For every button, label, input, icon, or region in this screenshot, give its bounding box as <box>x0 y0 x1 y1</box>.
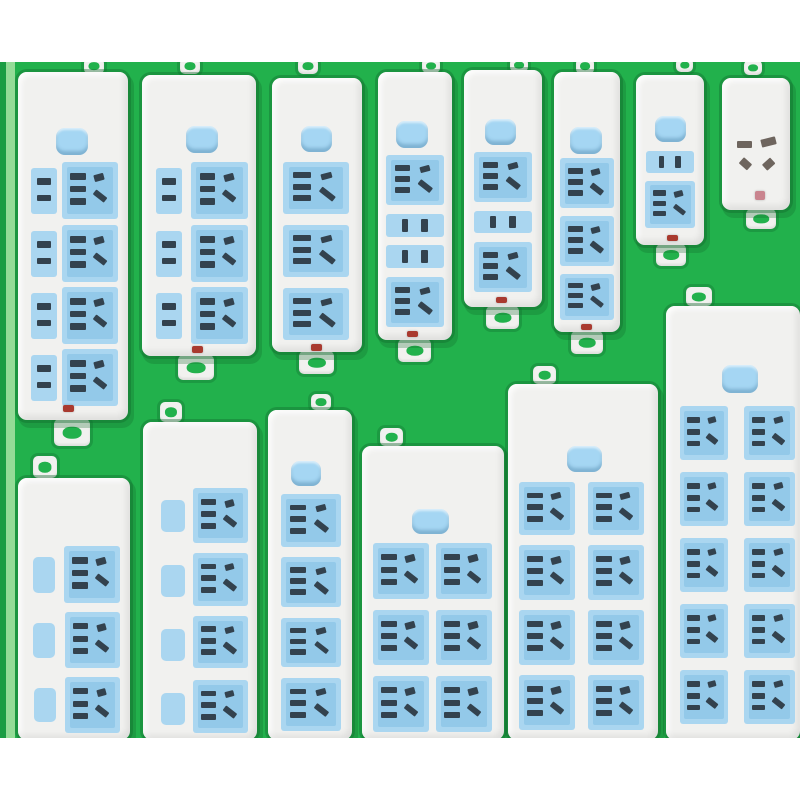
socket-hole <box>444 633 459 639</box>
power-strip <box>508 384 658 740</box>
socket-module <box>193 488 248 543</box>
socket-hole <box>568 179 583 185</box>
socket-hole <box>596 516 611 522</box>
socket-hole <box>596 645 611 651</box>
socket-hole <box>162 178 176 184</box>
socket-hole <box>395 165 411 171</box>
cord-handle-hole <box>307 357 325 368</box>
socket-hole <box>70 373 85 379</box>
hang-tab-hole <box>303 62 314 70</box>
hang-tab <box>33 456 57 478</box>
socket-module <box>34 688 56 722</box>
socket-hole <box>687 417 700 423</box>
socket-hole <box>395 298 411 304</box>
socket-hole <box>162 303 176 309</box>
socket-module <box>193 553 248 606</box>
socket-module <box>193 680 248 733</box>
socket-module <box>281 494 341 547</box>
cord-handle <box>398 339 431 362</box>
socket-module <box>744 406 795 460</box>
socket-hole <box>72 570 87 576</box>
left-edge-highlight-stripe <box>6 62 15 738</box>
hang-tab <box>380 428 403 446</box>
socket-hole <box>402 219 408 231</box>
socket-hole <box>483 263 499 269</box>
socket-module <box>519 545 575 600</box>
socket-hole <box>201 649 216 655</box>
socket-hole <box>201 575 216 581</box>
hang-tab-hole <box>692 292 706 301</box>
power-button <box>396 121 428 148</box>
socket-hole <box>73 688 88 694</box>
socket-hole <box>201 499 216 505</box>
socket-module <box>744 670 795 724</box>
socket-module <box>560 216 614 266</box>
socket-module <box>62 162 118 219</box>
hang-tab-hole <box>580 62 590 70</box>
power-button <box>301 126 332 152</box>
socket-hole <box>37 195 51 201</box>
socket-hole <box>293 247 311 253</box>
socket-hole <box>483 274 499 280</box>
socket-hole <box>568 283 583 288</box>
socket-hole <box>381 633 396 639</box>
socket-module <box>281 678 341 731</box>
socket-hole <box>381 554 396 560</box>
socket-hole <box>201 587 216 593</box>
socket-hole <box>483 173 499 179</box>
socket-hole <box>290 649 306 654</box>
socket-module <box>64 546 120 603</box>
socket-hole <box>752 573 766 579</box>
socket-hole <box>70 323 85 329</box>
socket-hole <box>687 507 700 513</box>
socket-hole <box>421 250 427 262</box>
socket-hole <box>395 309 411 315</box>
socket-hole <box>687 483 700 489</box>
socket-module <box>283 162 349 214</box>
socket-module <box>588 675 644 730</box>
socket-module <box>31 168 57 214</box>
socket-hole <box>72 582 87 588</box>
hang-tab <box>311 394 331 410</box>
socket-hole <box>527 556 542 562</box>
socket-module <box>193 616 248 668</box>
socket-module <box>191 287 248 344</box>
socket-module <box>373 543 429 599</box>
socket-hole <box>527 580 542 586</box>
socket-module <box>744 604 795 658</box>
socket-hole <box>200 236 215 242</box>
power-button <box>186 126 218 153</box>
socket-hole <box>509 216 515 228</box>
power-strip <box>666 306 800 740</box>
socket-hole <box>395 187 411 193</box>
cord-handle <box>746 209 776 229</box>
socket-hole <box>527 710 542 716</box>
socket-hole <box>752 705 766 711</box>
socket-hole <box>72 557 87 563</box>
socket-hole <box>596 633 611 639</box>
socket-module <box>283 225 349 277</box>
cord-handle-hole <box>63 426 82 438</box>
socket-module <box>191 225 248 282</box>
socket-module <box>161 565 185 597</box>
cord-handle <box>54 419 90 446</box>
socket-module <box>680 538 728 592</box>
socket-hole <box>739 157 753 170</box>
socket-hole <box>752 639 766 645</box>
socket-hole <box>596 556 611 562</box>
indicator-light <box>407 331 418 337</box>
hang-tab-hole <box>514 62 524 69</box>
socket-module <box>62 225 118 282</box>
socket-hole <box>527 621 542 627</box>
indicator-light <box>496 297 507 303</box>
socket-hole <box>596 698 611 704</box>
socket-hole <box>37 365 51 371</box>
socket-hole <box>402 250 408 262</box>
socket-hole <box>596 580 611 586</box>
socket-hole <box>762 157 776 170</box>
power-strip <box>18 478 130 740</box>
socket-hole <box>201 702 216 708</box>
socket-hole <box>290 528 306 534</box>
socket-hole <box>70 298 85 304</box>
socket-hole <box>201 714 216 720</box>
socket-hole <box>687 639 700 645</box>
socket-hole <box>290 712 306 718</box>
product-photo-collage <box>0 0 800 800</box>
socket-hole <box>70 360 85 366</box>
socket-hole <box>568 168 583 174</box>
socket-face <box>732 124 784 188</box>
socket-module <box>474 242 532 292</box>
socket-hole <box>687 705 700 711</box>
socket-hole <box>290 639 306 644</box>
hang-tab-hole <box>538 371 551 380</box>
socket-module <box>436 610 492 665</box>
socket-hole <box>381 645 396 651</box>
socket-hole <box>70 186 85 192</box>
socket-hole <box>687 693 700 699</box>
hang-tab-hole <box>89 62 100 70</box>
socket-hole <box>201 511 216 517</box>
socket-module <box>645 181 695 228</box>
socket-hole <box>568 190 583 196</box>
hang-tab-hole <box>165 407 177 417</box>
socket-hole <box>444 645 459 651</box>
power-button <box>567 446 602 472</box>
power-button <box>485 119 516 145</box>
cord-handle <box>178 355 214 380</box>
socket-hole <box>290 516 306 522</box>
socket-hole <box>162 195 176 201</box>
socket-hole <box>568 237 583 243</box>
socket-hole <box>70 385 85 391</box>
socket-hole <box>73 636 88 642</box>
socket-hole <box>201 523 216 529</box>
socket-hole <box>752 429 766 435</box>
socket-hole <box>752 561 766 567</box>
socket-hole <box>596 621 611 627</box>
socket-hole <box>568 248 583 254</box>
indicator-light <box>311 344 322 351</box>
socket-module <box>156 168 182 214</box>
socket-hole <box>687 495 700 501</box>
socket-hole <box>290 505 306 511</box>
socket-hole <box>200 311 215 317</box>
socket-module <box>560 274 614 320</box>
socket-hole <box>596 686 611 692</box>
socket-module <box>646 151 694 173</box>
socket-hole <box>527 645 542 651</box>
socket-hole <box>752 681 766 687</box>
hang-tab-hole <box>316 398 327 406</box>
socket-hole <box>596 568 611 574</box>
socket-hole <box>527 698 542 704</box>
socket-hole <box>483 184 499 190</box>
socket-hole <box>381 712 396 718</box>
socket-hole <box>760 136 776 147</box>
socket-hole <box>752 693 766 699</box>
socket-hole <box>70 173 85 179</box>
socket-hole <box>293 184 311 190</box>
power-strip <box>554 72 620 332</box>
socket-hole <box>752 507 766 513</box>
socket-module <box>519 610 575 665</box>
hang-tab-hole <box>426 62 436 69</box>
bottom-white-band <box>0 738 800 800</box>
socket-hole <box>201 691 216 697</box>
socket-hole <box>37 178 51 184</box>
socket-module <box>744 538 795 592</box>
socket-hole <box>444 567 459 573</box>
socket-hole <box>293 321 311 327</box>
socket-hole <box>293 310 311 316</box>
socket-hole <box>70 198 85 204</box>
socket-hole <box>290 589 306 595</box>
socket-module <box>62 287 118 344</box>
socket-hole <box>200 198 215 204</box>
socket-hole <box>73 623 88 629</box>
socket-hole <box>293 195 311 201</box>
cord-handle <box>299 351 334 374</box>
socket-hole <box>444 687 459 693</box>
socket-hole <box>290 689 306 695</box>
hang-tab-hole <box>38 462 51 473</box>
socket-hole <box>201 638 216 644</box>
top-white-band <box>0 0 800 62</box>
socket-hole <box>37 320 51 326</box>
socket-hole <box>37 382 51 388</box>
socket-module <box>386 214 444 237</box>
socket-hole <box>527 516 542 522</box>
socket-module <box>161 500 185 532</box>
cord-handle <box>571 331 603 354</box>
socket-hole <box>290 567 306 573</box>
socket-module <box>519 675 575 730</box>
socket-hole <box>381 579 396 585</box>
cord-handle-hole <box>753 214 769 223</box>
socket-hole <box>527 633 542 639</box>
socket-module <box>386 245 444 268</box>
socket-hole <box>687 549 700 555</box>
socket-module <box>161 629 185 661</box>
power-button <box>56 128 88 155</box>
socket-hole <box>421 219 427 231</box>
socket-hole <box>653 190 667 195</box>
cord-handle-hole <box>494 312 511 323</box>
socket-module <box>436 543 492 599</box>
socket-hole <box>444 554 459 560</box>
socket-hole <box>37 303 51 309</box>
socket-hole <box>568 303 583 308</box>
cord-handle <box>656 244 686 266</box>
socket-hole <box>73 648 88 654</box>
socket-module <box>31 355 57 401</box>
socket-hole <box>444 700 459 706</box>
socket-hole <box>483 162 499 168</box>
socket-module <box>386 277 444 327</box>
socket-hole <box>752 549 766 555</box>
socket-hole <box>70 249 85 255</box>
socket-hole <box>70 236 85 242</box>
hang-tab <box>744 60 762 75</box>
socket-module <box>281 618 341 667</box>
power-strip <box>268 410 352 740</box>
socket-hole <box>659 156 664 168</box>
cord-handle-hole <box>579 337 596 348</box>
socket-hole <box>527 686 542 692</box>
socket-hole <box>752 441 766 447</box>
socket-module <box>744 472 795 526</box>
socket-hole <box>290 628 306 633</box>
socket-hole <box>653 211 667 216</box>
socket-module <box>62 349 118 406</box>
socket-hole <box>687 573 700 579</box>
socket-hole <box>675 156 680 168</box>
socket-hole <box>687 429 700 435</box>
socket-hole <box>290 578 306 584</box>
socket-module <box>588 610 644 665</box>
power-strip <box>378 72 452 340</box>
socket-module <box>386 155 444 205</box>
hang-tab-hole <box>748 64 758 71</box>
socket-hole <box>381 621 396 627</box>
socket-hole <box>596 504 611 510</box>
socket-hole <box>37 258 51 264</box>
socket-hole <box>444 712 459 718</box>
socket-module <box>33 623 55 658</box>
socket-module <box>161 693 185 725</box>
socket-hole <box>200 261 215 267</box>
socket-hole <box>653 201 667 206</box>
socket-hole <box>73 701 88 707</box>
socket-hole <box>290 700 306 706</box>
power-strip <box>722 78 790 210</box>
socket-hole <box>752 627 766 633</box>
socket-hole <box>527 504 542 510</box>
hang-tab <box>686 287 712 306</box>
socket-hole <box>162 320 176 326</box>
socket-hole <box>381 687 396 693</box>
socket-module <box>65 677 120 733</box>
socket-hole <box>527 568 542 574</box>
power-strip <box>18 72 128 420</box>
socket-hole <box>37 241 51 247</box>
power-button <box>291 461 321 486</box>
hang-tab-hole <box>185 62 196 70</box>
socket-hole <box>444 621 459 627</box>
socket-hole <box>381 700 396 706</box>
socket-hole <box>70 261 85 267</box>
socket-hole <box>200 323 215 329</box>
socket-module <box>588 482 644 535</box>
socket-hole <box>293 172 311 178</box>
socket-hole <box>490 216 496 228</box>
socket-hole <box>752 615 766 621</box>
hang-tab-hole <box>680 62 689 69</box>
cord-handle <box>486 306 519 329</box>
socket-hole <box>73 713 88 719</box>
socket-hole <box>568 226 583 232</box>
socket-hole <box>293 258 311 264</box>
socket-module <box>680 670 728 724</box>
cord-handle-hole <box>406 345 423 356</box>
power-strip <box>143 422 257 740</box>
indicator-light <box>581 324 592 330</box>
socket-hole <box>752 495 766 501</box>
socket-module <box>31 293 57 339</box>
socket-hole <box>483 252 499 258</box>
indicator-light <box>667 235 678 241</box>
socket-hole <box>737 141 752 149</box>
socket-hole <box>596 710 611 716</box>
socket-hole <box>527 493 542 499</box>
hang-tab-hole <box>385 433 398 442</box>
socket-hole <box>687 561 700 567</box>
socket-hole <box>381 567 396 573</box>
power-strip <box>636 75 704 245</box>
power-button <box>655 116 686 142</box>
socket-hole <box>200 249 215 255</box>
socket-hole <box>395 287 411 293</box>
power-strip <box>362 446 504 740</box>
indicator-light <box>755 191 765 200</box>
socket-hole <box>200 173 215 179</box>
cord-handle-hole <box>187 362 206 374</box>
socket-module <box>560 158 614 208</box>
socket-module <box>156 293 182 339</box>
socket-module <box>474 211 532 233</box>
power-strip <box>142 75 256 356</box>
socket-hole <box>596 493 611 499</box>
socket-module <box>680 604 728 658</box>
indicator-light <box>63 405 74 412</box>
socket-hole <box>201 626 216 632</box>
socket-hole <box>444 579 459 585</box>
indicator-light <box>192 346 203 353</box>
socket-hole <box>687 615 700 621</box>
socket-module <box>156 231 182 277</box>
socket-hole <box>752 483 766 489</box>
socket-hole <box>752 417 766 423</box>
socket-hole <box>687 627 700 633</box>
hang-tab <box>160 402 182 422</box>
socket-hole <box>293 298 311 304</box>
socket-module <box>33 557 55 593</box>
